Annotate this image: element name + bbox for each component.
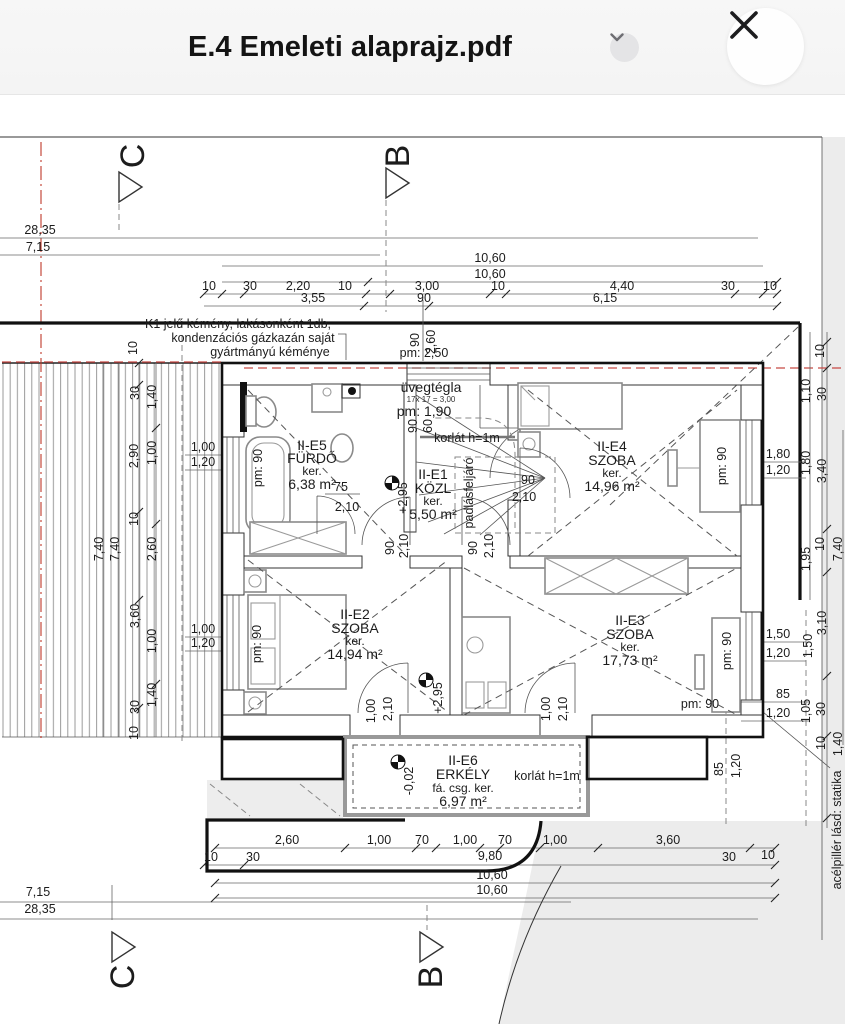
dim-label: 7,40 <box>831 537 845 561</box>
dim-label: 1,80 <box>799 451 813 475</box>
dim-label: 30 <box>814 702 828 716</box>
dim-label: 90 <box>383 541 397 555</box>
svg-text:ERKÉLY: ERKÉLY <box>436 766 491 782</box>
dim-label: 2,60 <box>145 537 159 561</box>
level-label: -0,02 <box>402 767 416 796</box>
terrace-right <box>587 737 707 779</box>
dim-label: 10 <box>202 279 216 293</box>
dim-label: 1,50 <box>801 634 815 658</box>
dim-label: 1,95 <box>799 547 813 571</box>
closet-mid <box>462 617 510 713</box>
floor-plan-drawing[interactable]: C B C B 28,35 7,15 10,60 10,60 10 30 2,2… <box>0 0 845 1024</box>
chevron-down-icon[interactable] <box>610 33 639 62</box>
svg-text:5,50 m²: 5,50 m² <box>409 506 457 522</box>
window-left-bedroom <box>227 595 239 690</box>
dim-label: 3,40 <box>815 459 829 483</box>
desk-e4 <box>668 420 740 512</box>
dim-label: 10,60 <box>474 251 505 265</box>
section-flag-c-top <box>119 172 142 202</box>
railing-note: korlát h=1m <box>514 769 580 783</box>
dim-label: 2,10 <box>512 490 536 504</box>
parapet-label: pm: 90 <box>720 632 734 670</box>
dim-label: 1,40 <box>145 683 159 707</box>
header-bar: E.4 Emeleti alaprajz.pdf <box>0 0 845 95</box>
dim-label: 7,15 <box>26 240 50 254</box>
dim-label: 10 <box>761 848 775 862</box>
dim-label: 90 <box>521 473 535 487</box>
svg-text:14,96 m²: 14,96 m² <box>584 478 640 494</box>
axis-letter-c-top: C <box>114 144 152 169</box>
dim-label: 1,20 <box>729 754 743 778</box>
parapet-label: pm: 90 <box>251 449 265 487</box>
dim-label: 10 <box>338 279 352 293</box>
glassblock-parapet: pm: 1,90 <box>397 403 452 419</box>
dim-label: 9,80 <box>478 849 502 863</box>
dim-label: 90 <box>417 291 431 305</box>
svg-text:6,38 m²: 6,38 m² <box>288 476 336 492</box>
dim-label: 90 <box>408 333 422 347</box>
section-flag-b-top <box>386 168 409 198</box>
window-right-e4 <box>746 420 762 505</box>
dim-label: 10 <box>813 537 827 551</box>
dim-label: 1,00 <box>145 629 159 653</box>
svg-text:17,73 m²: 17,73 m² <box>602 652 658 668</box>
dimension-lines-top <box>0 238 781 310</box>
dim-label: 1,50 <box>766 627 790 641</box>
dim-label: 1,20 <box>766 463 790 477</box>
dim-label: 1,20 <box>191 455 215 469</box>
dim-label: 2,60 <box>275 833 299 847</box>
dim-label: 1,40 <box>145 385 159 409</box>
dim-label: 70 <box>415 833 429 847</box>
dim-label: 3,60 <box>128 604 142 628</box>
level-label: +2,95 <box>431 682 445 714</box>
dim-label: 10,60 <box>476 868 507 882</box>
dim-label: 2,10 <box>335 500 359 514</box>
dim-label: pm: 2,50 <box>400 346 449 360</box>
dim-label: 1,10 <box>799 379 813 403</box>
dim-label: 10,60 <box>476 883 507 897</box>
pdf-viewer: C B C B 28,35 7,15 10,60 10,60 10 30 2,2… <box>0 0 845 1024</box>
dim-label: 3,10 <box>815 611 829 635</box>
dim-label: 85 <box>712 762 726 776</box>
wardrobe-bath <box>250 522 346 554</box>
dim-label: 28,35 <box>24 223 55 237</box>
dim-label: 2,10 <box>556 697 570 721</box>
dim-label: 70 <box>498 833 512 847</box>
dim-label: 85 <box>776 687 790 701</box>
dim-label: 10 <box>127 512 141 526</box>
dim-label: 2,10 <box>381 697 395 721</box>
room-label-e4: II-E4 SZOBA ker. 14,96 m² <box>584 438 640 494</box>
parapet-label: pm: 90 <box>250 625 264 663</box>
dim-label: 10 <box>126 341 140 355</box>
document-title: E.4 Emeleti alaprajz.pdf <box>0 0 700 94</box>
dim-label: 1,05 <box>799 699 813 723</box>
dim-label: 3,55 <box>301 291 325 305</box>
parapet-label: pm: 90 <box>681 697 719 711</box>
dim-label: 10 <box>814 736 828 750</box>
dim-label: 1,00 <box>191 440 215 454</box>
dim-label: 1,40 <box>831 732 845 756</box>
steel-pillar-note: acélpillér lásd: statika <box>830 771 844 890</box>
window-right-e3 <box>746 612 762 700</box>
window-left-bath <box>227 437 239 533</box>
svg-text:14,94 m²: 14,94 m² <box>327 646 383 662</box>
wardrobe-e4 <box>545 558 688 594</box>
chimney-note: K1 jelű kémény, lakásonként 1db, <box>145 317 331 331</box>
chimney-note: gyártmányú kéménye <box>210 345 330 359</box>
dim-label: 7,40 <box>108 537 122 561</box>
dim-label: 10 <box>813 344 827 358</box>
dim-label: 2,10 <box>482 534 496 558</box>
dim-label: 2,90 <box>127 444 141 468</box>
room-label-furdo: II-E5 FÜRDŐ ker. 6,38 m² <box>287 437 337 492</box>
terrace-left <box>222 739 343 779</box>
dim-label: 28,35 <box>24 902 55 916</box>
dim-label: 3,60 <box>656 833 680 847</box>
dim-label: 10 <box>127 726 141 740</box>
dim-label: 7,15 <box>26 885 50 899</box>
dim-label: 60 <box>421 419 435 433</box>
dim-label: 30 <box>722 850 736 864</box>
dim-label: 30 <box>246 850 260 864</box>
dim-label: 30 <box>721 279 735 293</box>
axis-letter-c-bottom: C <box>104 965 142 990</box>
axis-letter-b-bottom: B <box>412 966 450 989</box>
dim-label: 1,00 <box>543 833 567 847</box>
dim-label: 1,20 <box>766 646 790 660</box>
level-label: +2,95 <box>396 482 410 514</box>
dim-label: 1,00 <box>191 622 215 636</box>
svg-text:6,97 m²: 6,97 m² <box>439 793 487 809</box>
dim-label: 90 <box>406 419 420 433</box>
dim-label: 1,80 <box>766 447 790 461</box>
dim-label: 10 <box>491 279 505 293</box>
dim-label: 10 <box>204 850 218 864</box>
dim-label: 1,00 <box>145 441 159 465</box>
axis-letter-b-top: B <box>379 145 417 168</box>
dim-label: 1,00 <box>453 833 477 847</box>
dim-label: 90 <box>466 541 480 555</box>
close-icon[interactable] <box>727 8 804 85</box>
parapet-label: pm: 90 <box>715 447 729 485</box>
dim-label: 6,15 <box>593 291 617 305</box>
dim-label: 30 <box>128 700 142 714</box>
railing-note: korlát h=1m <box>434 431 500 445</box>
dim-label: 2,10 <box>397 534 411 558</box>
dim-label: 30 <box>128 386 142 400</box>
section-flag-b-bottom <box>420 932 443 962</box>
dim-label: 30 <box>243 279 257 293</box>
dim-label: 10 <box>763 279 777 293</box>
dim-label: 1,00 <box>364 699 378 723</box>
dim-label: 1,00 <box>539 697 553 721</box>
dim-label: 1,20 <box>766 706 790 720</box>
dim-label: 1,20 <box>191 636 215 650</box>
section-flag-c-bottom <box>112 932 135 962</box>
attic-access-note: padlásfeljáró <box>462 458 476 529</box>
dim-label: 75 <box>334 480 348 494</box>
glassblock-note: üvegtégla <box>401 379 462 395</box>
room-label-e3: II-E3 SZOBA ker. 17,73 m² <box>602 612 658 668</box>
chimney-note: kondenzációs gázkazán saját <box>171 331 335 345</box>
dim-label: 1,00 <box>367 833 391 847</box>
dim-label: 7,40 <box>92 537 106 561</box>
dim-label: 30 <box>815 387 829 401</box>
